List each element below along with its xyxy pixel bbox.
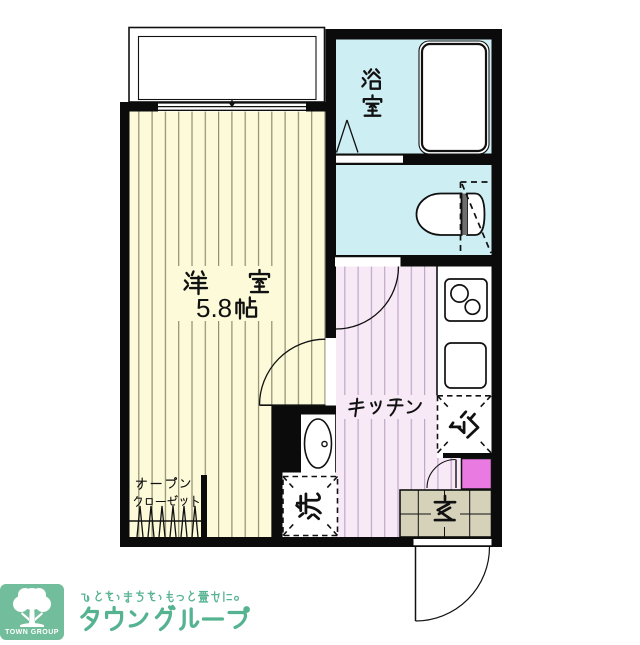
- svg-text:5.8: 5.8: [196, 293, 232, 323]
- svg-text:TOWN GROUP: TOWN GROUP: [5, 629, 59, 636]
